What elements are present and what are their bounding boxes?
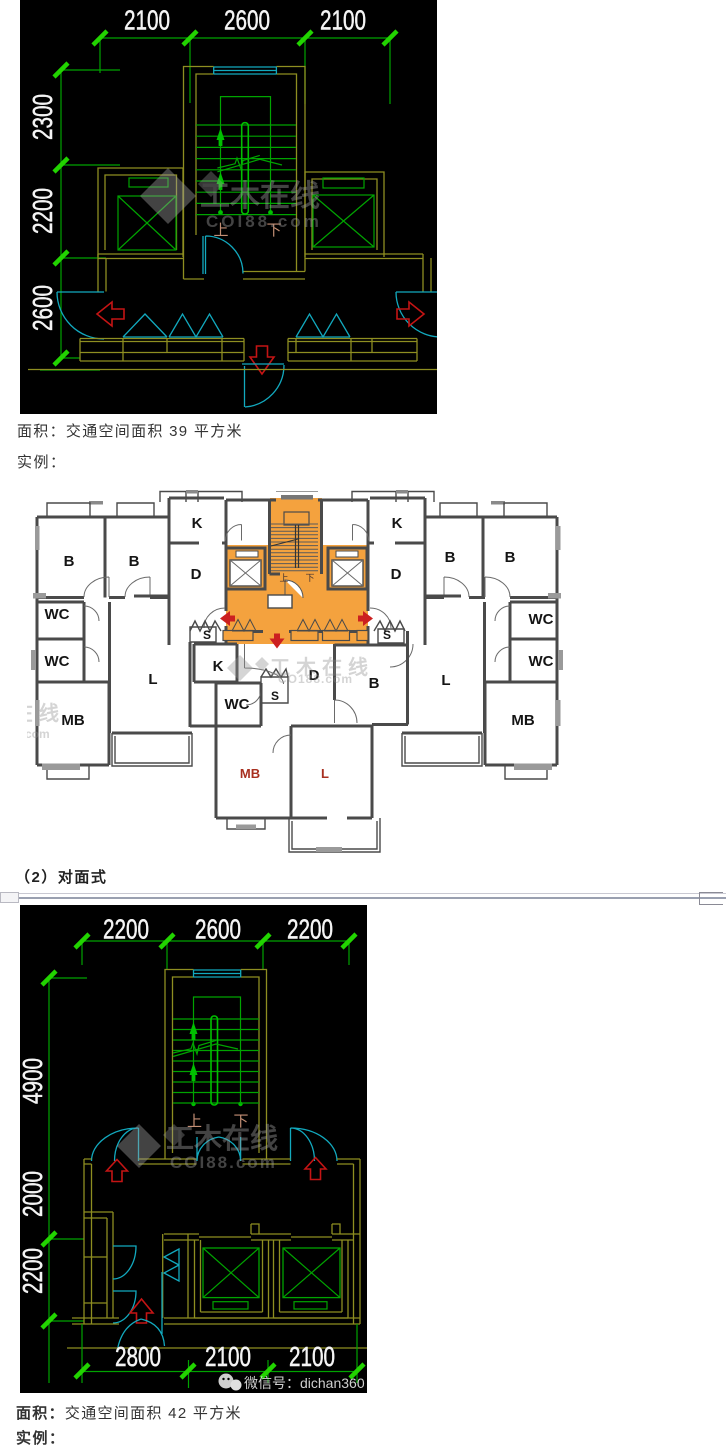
svg-text:2600: 2600 bbox=[27, 285, 58, 331]
svg-text:MB: MB bbox=[511, 712, 534, 729]
svg-text:B: B bbox=[505, 549, 516, 566]
svg-text:在线: 在线 bbox=[27, 701, 65, 725]
svg-text:2100: 2100 bbox=[289, 1341, 335, 1372]
svg-text:WC: WC bbox=[529, 611, 554, 628]
svg-text:上: 上 bbox=[279, 573, 288, 583]
svg-text:MB: MB bbox=[240, 766, 260, 781]
svg-text:2200: 2200 bbox=[103, 914, 149, 945]
svg-text:COI88.com: COI88.com bbox=[206, 212, 322, 231]
svg-text:K: K bbox=[192, 515, 203, 532]
svg-text:D: D bbox=[391, 566, 402, 583]
svg-text:L: L bbox=[321, 766, 329, 781]
svg-text:2200: 2200 bbox=[287, 914, 333, 945]
svg-text:K: K bbox=[213, 658, 224, 675]
svg-text:工木在线: 工木在线 bbox=[166, 1123, 278, 1154]
svg-text:WC: WC bbox=[45, 606, 70, 623]
svg-text:2100: 2100 bbox=[205, 1341, 251, 1372]
svg-text:COI88.com: COI88.com bbox=[170, 1153, 277, 1172]
svg-text:2200: 2200 bbox=[27, 188, 58, 234]
svg-text:微信号：dichan360: 微信号：dichan360 bbox=[244, 1375, 365, 1391]
svg-text:WC: WC bbox=[529, 653, 554, 670]
svg-text:WC: WC bbox=[45, 653, 70, 670]
svg-text:2000: 2000 bbox=[20, 1171, 48, 1217]
svg-text:L: L bbox=[441, 672, 450, 689]
svg-text:2600: 2600 bbox=[195, 914, 241, 945]
svg-text:2100: 2100 bbox=[124, 5, 170, 36]
svg-text:B: B bbox=[64, 553, 75, 570]
svg-text:S: S bbox=[271, 689, 279, 703]
svg-text:S: S bbox=[203, 628, 211, 642]
svg-text:2100: 2100 bbox=[320, 5, 366, 36]
svg-text:WC: WC bbox=[225, 696, 250, 713]
svg-text:L: L bbox=[148, 671, 157, 688]
svg-text:2600: 2600 bbox=[224, 5, 270, 36]
svg-text:B: B bbox=[445, 549, 456, 566]
svg-text:下: 下 bbox=[305, 573, 314, 583]
svg-text:CO188.com: CO188.com bbox=[278, 672, 353, 686]
svg-text:B: B bbox=[129, 553, 140, 570]
svg-text:8.com: 8.com bbox=[27, 727, 50, 741]
svg-text:S: S bbox=[383, 628, 391, 642]
svg-text:D: D bbox=[191, 566, 202, 583]
svg-text:2200: 2200 bbox=[20, 1248, 48, 1294]
svg-text:K: K bbox=[392, 515, 403, 532]
svg-text:2300: 2300 bbox=[27, 94, 58, 140]
svg-text:4900: 4900 bbox=[20, 1058, 48, 1104]
svg-text:工木在线: 工木在线 bbox=[200, 180, 320, 213]
svg-text:2800: 2800 bbox=[115, 1341, 161, 1372]
